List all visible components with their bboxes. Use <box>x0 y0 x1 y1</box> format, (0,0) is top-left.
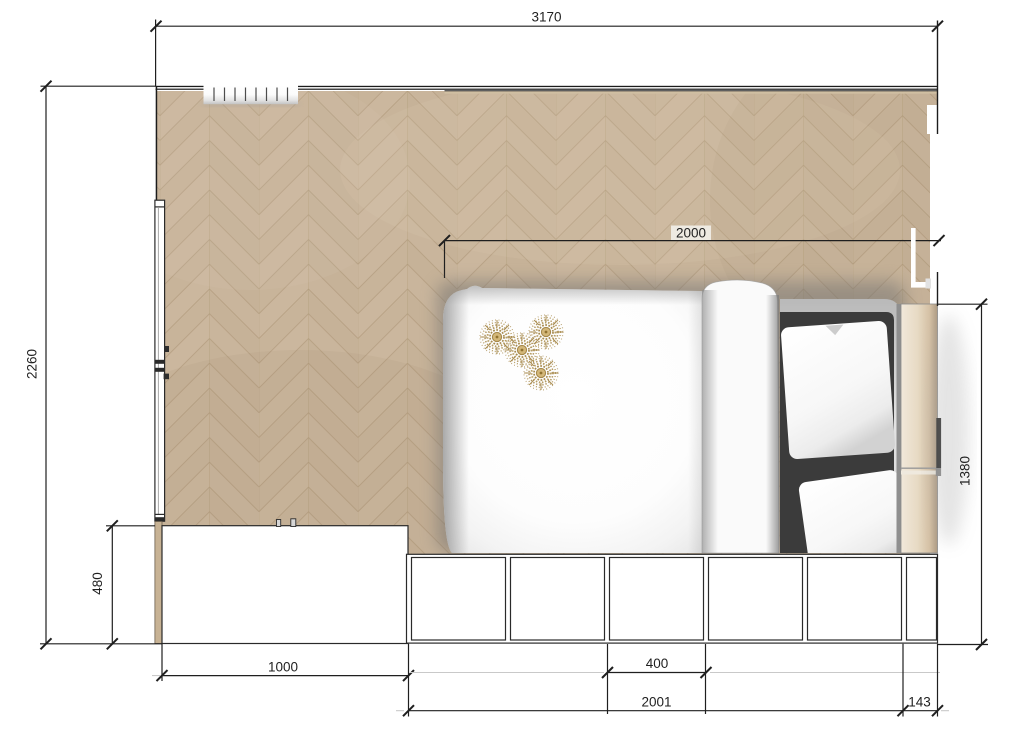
svg-text:1000: 1000 <box>268 660 298 675</box>
svg-text:480: 480 <box>90 572 105 595</box>
svg-text:3170: 3170 <box>531 10 561 25</box>
svg-text:143: 143 <box>908 695 931 710</box>
svg-text:1380: 1380 <box>958 456 973 486</box>
svg-text:2000: 2000 <box>676 225 706 240</box>
svg-text:400: 400 <box>646 656 669 671</box>
svg-text:2260: 2260 <box>25 349 40 379</box>
svg-text:2001: 2001 <box>641 695 671 710</box>
